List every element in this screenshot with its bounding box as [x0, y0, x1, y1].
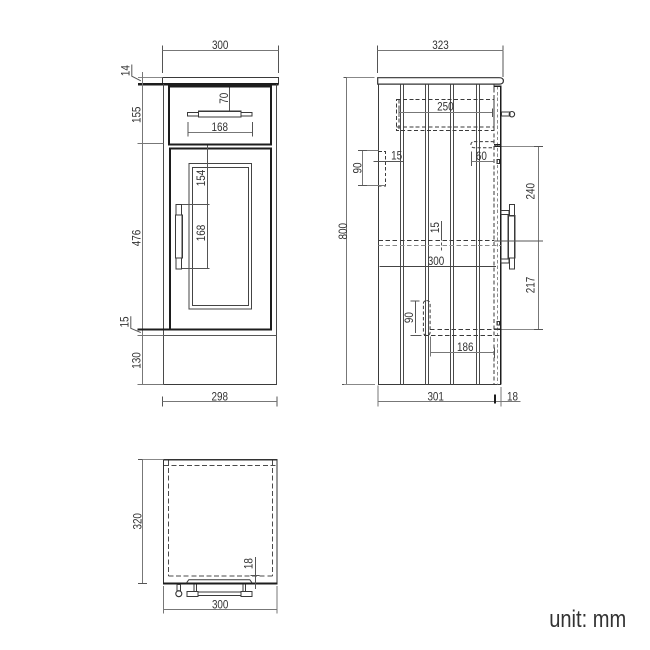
svg-text:130: 130: [130, 352, 143, 369]
svg-text:14: 14: [119, 65, 132, 76]
svg-text:168: 168: [212, 121, 229, 134]
svg-text:15: 15: [118, 316, 131, 327]
svg-text:90: 90: [403, 312, 416, 323]
svg-text:323: 323: [432, 39, 449, 52]
svg-text:90: 90: [352, 162, 365, 173]
svg-text:70: 70: [218, 92, 231, 103]
svg-text:60: 60: [476, 150, 487, 163]
svg-text:476: 476: [130, 230, 143, 247]
svg-text:301: 301: [427, 390, 444, 403]
svg-text:300: 300: [212, 39, 229, 52]
svg-text:800: 800: [337, 223, 350, 240]
svg-text:154: 154: [195, 169, 208, 186]
svg-text:300: 300: [212, 598, 229, 611]
svg-text:15: 15: [391, 149, 402, 162]
svg-text:155: 155: [130, 106, 143, 123]
svg-text:18: 18: [242, 558, 255, 569]
svg-text:18: 18: [507, 390, 518, 403]
svg-text:298: 298: [212, 390, 229, 403]
svg-text:15: 15: [429, 222, 442, 233]
svg-text:250: 250: [437, 101, 454, 114]
svg-text:240: 240: [524, 183, 537, 200]
svg-text:unit: mm: unit: mm: [549, 606, 626, 633]
svg-text:168: 168: [195, 225, 208, 242]
svg-text:300: 300: [428, 255, 445, 268]
svg-text:320: 320: [131, 513, 144, 530]
svg-text:186: 186: [457, 341, 474, 354]
svg-text:217: 217: [524, 277, 537, 294]
